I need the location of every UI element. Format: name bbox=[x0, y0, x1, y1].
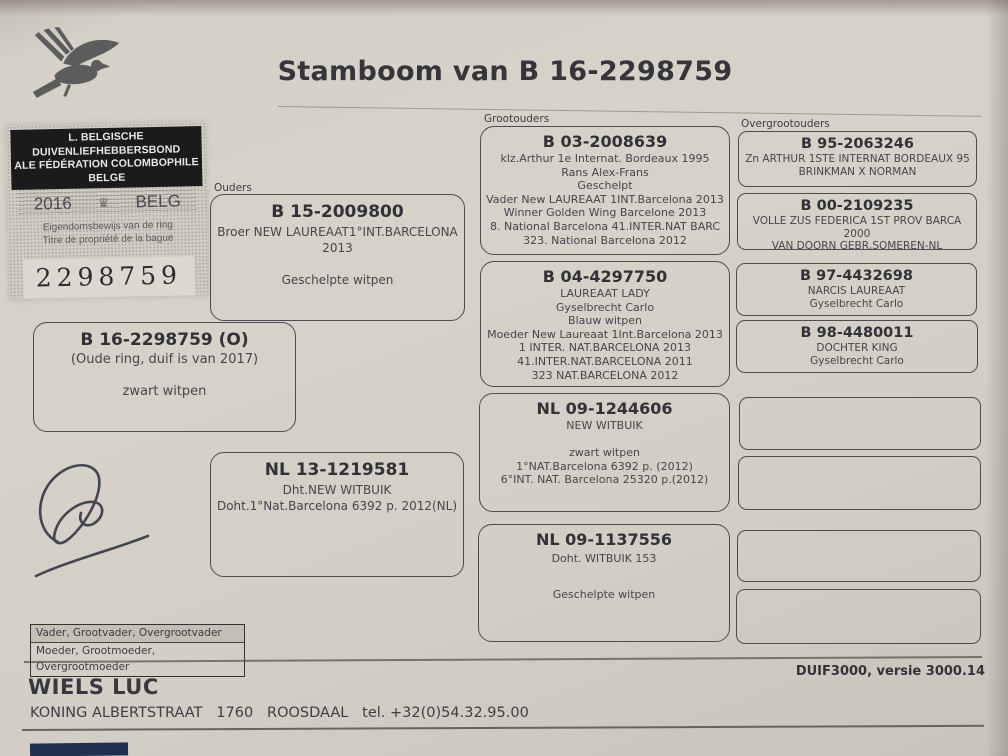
grandparent-box-1: B 03-2008639 klz.Arthur 1e Internat. Bor… bbox=[480, 126, 730, 255]
legend-row-mother-line: Moeder, Grootmoeder, Overgrootmoeder bbox=[31, 643, 244, 676]
subject-line: zwart witpen bbox=[34, 384, 295, 400]
father-line bbox=[211, 256, 464, 272]
subject-box: B 16-2298759 (O) (Oude ring, duif is van… bbox=[33, 322, 296, 432]
breeder-address: KONING ALBERTSTRAAT 1760 ROOSDAAL tel. +… bbox=[30, 705, 529, 721]
great-grandparent-line: BRINKMAN X NORMAN bbox=[739, 166, 976, 179]
grandparent-line: zwart witpen bbox=[480, 446, 729, 460]
photo-background-object bbox=[30, 742, 128, 756]
stamp-country: BELG bbox=[135, 191, 181, 212]
subject-line: (Oude ring, duif is van 2017) bbox=[34, 352, 295, 368]
grandparent-line: 1 INTER. NAT.BARCELONA 2013 bbox=[481, 341, 729, 355]
great-grandparent-line: NARCIS LAUREAAT bbox=[737, 285, 976, 298]
legend-row-father-line: Vader, Grootvader, Overgrootvader bbox=[31, 625, 244, 643]
section-label-grootouders: Grootouders bbox=[484, 113, 549, 125]
father-line: Geschelpte witpen bbox=[211, 272, 464, 288]
page-title: Stamboom van B 16-2298759 bbox=[270, 56, 740, 87]
stamp-year: 2016 bbox=[34, 194, 72, 215]
father-ring: B 15-2009800 bbox=[211, 202, 464, 222]
grandparent-ring: NL 09-1244606 bbox=[480, 399, 729, 418]
stamp-federation-line2: ALE FÉDÉRATION COLOMBOPHILE BELGE bbox=[12, 156, 202, 187]
grandparent-ring: B 03-2008639 bbox=[481, 132, 729, 151]
grandparent-line: 6°INT. NAT. Barcelona 25320 p.(2012) bbox=[480, 473, 729, 487]
grandparent-line: LAUREAAT LADY bbox=[481, 287, 729, 301]
great-grandparent-ring: B 00-2109235 bbox=[738, 198, 976, 214]
grandparent-line: Geschelpte witpen bbox=[479, 586, 729, 604]
stamp-year-row: 2016 ♛ BELG bbox=[18, 189, 197, 217]
mother-line: Dht.NEW WITBUIK bbox=[211, 482, 463, 498]
signature bbox=[20, 446, 172, 588]
grandparent-line: NEW WITBUIK bbox=[480, 419, 729, 433]
stamp-ownership-text: Eigendomsbewijs van de ring Titre de pro… bbox=[8, 219, 207, 248]
grandparent-line bbox=[480, 433, 729, 447]
ring-ownership-stamp: L. BELGISCHE DUIVENLIEFHEBBERSBOND ALE F… bbox=[6, 122, 209, 299]
section-label-ouders: Ouders bbox=[214, 182, 252, 194]
mother-box: NL 13-1219581 Dht.NEW WITBUIK Doht.1°Nat… bbox=[210, 452, 464, 577]
great-grandparent-box-4: B 98-4480011 DOCHTER KING Gyselbrecht Ca… bbox=[736, 320, 978, 373]
grandparent-ring: B 04-4297750 bbox=[481, 267, 729, 286]
father-box: B 15-2009800 Broer NEW LAUREAAT1°INT.BAR… bbox=[210, 194, 465, 321]
photo-shadow-right bbox=[986, 0, 1008, 756]
empty-pedigree-box bbox=[736, 589, 981, 644]
grandparent-line: Vader New LAUREAAT 1INT.Barcelona 2013 bbox=[481, 193, 729, 207]
great-grandparent-box-3: B 97-4432698 NARCIS LAUREAAT Gyselbrecht… bbox=[736, 263, 977, 316]
software-version: DUIF3000, versie 3000.14 bbox=[795, 664, 985, 679]
grandparent-line: Gyselbrecht Carlo bbox=[481, 301, 729, 315]
photo-shadow-top bbox=[0, 0, 1008, 16]
great-grandparent-line: DOCHTER KING bbox=[737, 342, 977, 355]
great-grandparent-box-2: B 00-2109235 VOLLE ZUS FEDERICA 1ST PROV… bbox=[737, 193, 977, 250]
grandparent-line: 323 NAT.BARCELONA 2012 bbox=[481, 369, 729, 383]
crown-icon: ♛ bbox=[98, 195, 110, 211]
grandparent-line: Winner Golden Wing Barcelone 2013 bbox=[481, 206, 729, 220]
title-divider-line bbox=[278, 106, 982, 117]
great-grandparent-line: Gyselbrecht Carlo bbox=[737, 355, 977, 368]
empty-pedigree-box bbox=[739, 397, 981, 450]
grandparent-line: Geschelpt bbox=[481, 179, 729, 193]
grandparent-line: 41.INTER.NAT.BARCELONA 2011 bbox=[481, 355, 729, 369]
pigeon-logo-icon bbox=[22, 24, 130, 108]
mother-line: Doht.1°Nat.Barcelona 6392 p. 2012(NL) bbox=[211, 498, 463, 514]
stamp-ring-number: 2298759 bbox=[23, 256, 195, 299]
grandparent-ring: NL 09-1137556 bbox=[479, 530, 729, 549]
great-grandparent-line: VAN DOORN GEBR,SOMEREN-NL bbox=[738, 240, 976, 253]
grandparent-line: Blauw witpen bbox=[481, 314, 729, 328]
grandparent-line: 323. National Barcelona 2012 bbox=[481, 234, 729, 248]
grandparent-line: 8. National Barcelona 41.INTER.NAT BARC bbox=[481, 220, 729, 234]
grandparent-line: Rans Alex-Frans bbox=[481, 166, 729, 180]
subject-line bbox=[34, 368, 295, 384]
grandparent-line bbox=[479, 568, 729, 586]
great-grandparent-box-1: B 95-2063246 Zn ARTHUR 1STE INTERNAT BOR… bbox=[738, 131, 977, 187]
mother-ring: NL 13-1219581 bbox=[211, 460, 463, 480]
pedigree-document: Stamboom van B 16-2298759 L. BELGISCHE D… bbox=[0, 0, 1008, 756]
grandparent-line: Doht. WITBUIK 153 bbox=[479, 550, 729, 568]
great-grandparent-line: Gyselbrecht Carlo bbox=[737, 298, 976, 311]
great-grandparent-ring: B 98-4480011 bbox=[737, 325, 977, 341]
bottom-edge-line bbox=[22, 725, 984, 731]
section-label-overgrootouders: Overgrootouders bbox=[741, 118, 830, 130]
great-grandparent-line: Zn ARTHUR 1STE INTERNAT BORDEAUX 95 bbox=[739, 153, 976, 166]
stamp-federation-line1: L. BELGISCHE DUIVENLIEFHEBBERSBOND bbox=[11, 129, 201, 160]
grandparent-line: Moeder New Laureaat 1Int.Barcelona 2013 bbox=[481, 328, 729, 342]
great-grandparent-ring: B 97-4432698 bbox=[737, 268, 976, 284]
grandparent-box-4: NL 09-1137556 Doht. WITBUIK 153 Geschelp… bbox=[478, 524, 730, 642]
grandparent-box-2: B 04-4297750 LAUREAAT LADY Gyselbrecht C… bbox=[480, 261, 730, 387]
grandparent-line: klz.Arthur 1e Internat. Bordeaux 1995 bbox=[481, 152, 729, 166]
breeder-name: WIELS LUC bbox=[28, 675, 159, 699]
subject-ring: B 16-2298759 (O) bbox=[34, 330, 295, 350]
empty-pedigree-box bbox=[738, 456, 981, 510]
grandparent-box-3: NL 09-1244606 NEW WITBUIK zwart witpen 1… bbox=[479, 393, 730, 512]
great-grandparent-ring: B 95-2063246 bbox=[739, 136, 976, 152]
grandparent-line: 1°NAT.Barcelona 6392 p. (2012) bbox=[480, 460, 729, 474]
stamp-federation-header: L. BELGISCHE DUIVENLIEFHEBBERSBOND ALE F… bbox=[10, 126, 202, 190]
great-grandparent-line: VOLLE ZUS FEDERICA 1ST PROV BARCA 2000 bbox=[738, 215, 976, 240]
empty-pedigree-box bbox=[737, 530, 981, 582]
legend-table: Vader, Grootvader, Overgrootvader Moeder… bbox=[30, 624, 245, 677]
father-line: Broer NEW LAUREAAT1°INT.BARCELONA 2013 bbox=[211, 224, 464, 256]
